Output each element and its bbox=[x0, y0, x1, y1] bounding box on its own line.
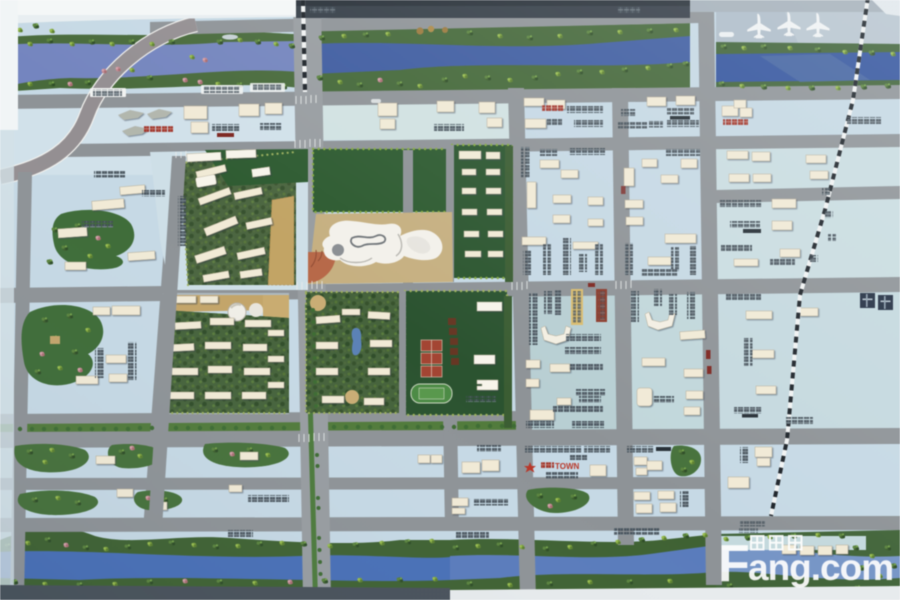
svg-text:F: F bbox=[718, 535, 750, 593]
svg-text:TOWN: TOWN bbox=[555, 462, 580, 471]
svg-text:ang.com: ang.com bbox=[748, 547, 893, 588]
